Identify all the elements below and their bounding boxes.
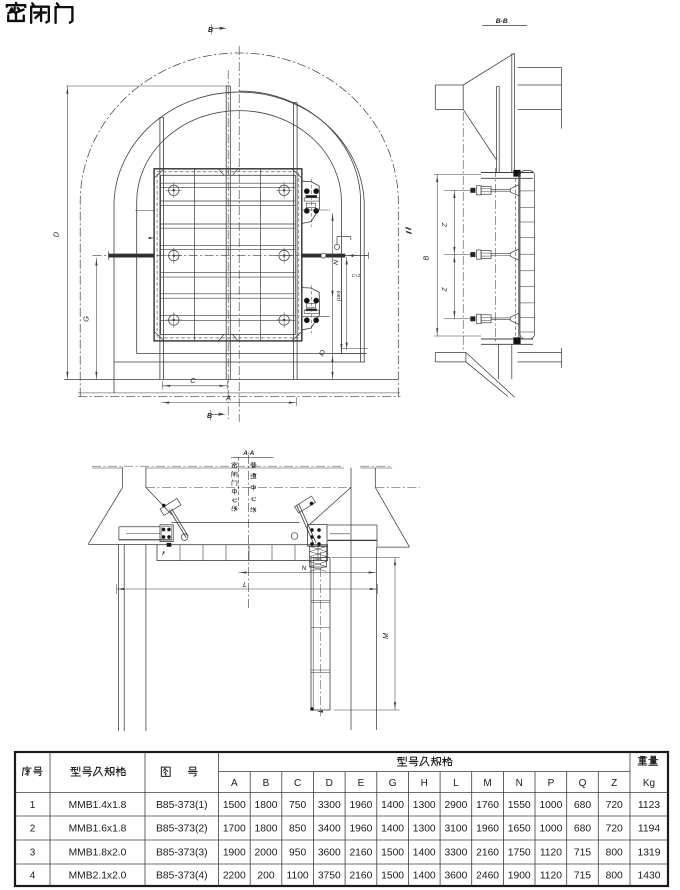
svg-text:950: 950: [289, 848, 306, 859]
svg-text:1300: 1300: [413, 800, 436, 811]
svg-text:1319: 1319: [638, 848, 661, 859]
svg-text:E: E: [358, 778, 365, 789]
svg-text:2900: 2900: [444, 800, 467, 811]
svg-text:3600: 3600: [318, 848, 341, 859]
svg-text:3: 3: [30, 848, 36, 859]
svg-text:P: P: [548, 778, 555, 789]
svg-text:Q: Q: [319, 350, 325, 357]
svg-text:M: M: [483, 778, 491, 789]
svg-text:200: 200: [257, 871, 274, 882]
svg-text:N: N: [302, 565, 307, 572]
svg-text:4: 4: [30, 871, 36, 882]
svg-text:2160: 2160: [349, 848, 372, 859]
svg-text:1750: 1750: [508, 848, 531, 859]
svg-text:B: B: [263, 778, 270, 789]
svg-text:2200: 2200: [223, 871, 246, 882]
svg-text:Z: Z: [442, 222, 449, 228]
svg-text:2460: 2460: [476, 871, 499, 882]
svg-text:MMB1.4x1.8: MMB1.4x1.8: [69, 800, 127, 811]
svg-text:1500: 1500: [381, 871, 404, 882]
svg-text:1000: 1000: [539, 824, 562, 835]
svg-text:1500: 1500: [381, 848, 404, 859]
svg-text:3750: 3750: [318, 871, 341, 882]
svg-text:3100: 3100: [444, 824, 467, 835]
svg-text:1430: 1430: [638, 871, 661, 882]
svg-text:720: 720: [606, 800, 623, 811]
svg-text:1120: 1120: [540, 848, 562, 859]
svg-text:1120: 1120: [540, 871, 562, 882]
svg-text:720: 720: [606, 824, 623, 835]
svg-text:715: 715: [574, 848, 591, 859]
svg-text:Q: Q: [579, 778, 587, 789]
svg-text:715: 715: [574, 871, 591, 882]
svg-text:1960: 1960: [349, 800, 372, 811]
svg-text:N: N: [516, 778, 523, 789]
svg-text:1800: 1800: [255, 824, 278, 835]
svg-text:2160: 2160: [476, 848, 499, 859]
svg-text:1760: 1760: [476, 800, 499, 811]
svg-text:3400: 3400: [318, 824, 341, 835]
svg-text:1960: 1960: [349, 824, 372, 835]
svg-text:C+Z: C+Z: [352, 273, 361, 278]
svg-text:1400: 1400: [381, 824, 404, 835]
svg-text:1400: 1400: [413, 848, 436, 859]
svg-text:G: G: [82, 316, 91, 322]
svg-text:1700: 1700: [223, 824, 246, 835]
svg-text:B85-373(2): B85-373(2): [156, 824, 208, 835]
svg-text:800: 800: [606, 871, 623, 882]
svg-text:1900: 1900: [508, 871, 531, 882]
svg-text:680: 680: [574, 800, 591, 811]
svg-text:A: A: [225, 394, 231, 403]
svg-text:800: 800: [606, 848, 623, 859]
svg-text:1800: 1800: [255, 800, 278, 811]
svg-text:1650: 1650: [508, 824, 531, 835]
svg-text:MMB2.1x2.0: MMB2.1x2.0: [69, 871, 127, 882]
svg-text:D: D: [326, 778, 333, 789]
svg-text:1500: 1500: [223, 800, 246, 811]
svg-text:3300: 3300: [318, 800, 341, 811]
svg-text:Z: Z: [442, 287, 449, 293]
svg-text:(180): (180): [336, 290, 341, 301]
svg-text:Z: Z: [611, 778, 617, 789]
svg-text:B-B: B-B: [496, 18, 508, 25]
svg-text:L: L: [243, 580, 247, 589]
svg-text:C: C: [190, 376, 196, 385]
svg-text:Kg: Kg: [643, 778, 655, 789]
svg-text:1123: 1123: [638, 800, 660, 811]
svg-text:2160: 2160: [349, 871, 372, 882]
svg-text:1400: 1400: [381, 800, 404, 811]
svg-text:B85-373(4): B85-373(4): [156, 871, 208, 882]
svg-text:M: M: [381, 633, 390, 639]
svg-text:1960: 1960: [476, 824, 499, 835]
svg-text:3600: 3600: [444, 871, 467, 882]
svg-text:3300: 3300: [444, 848, 467, 859]
svg-text:1: 1: [30, 800, 36, 811]
svg-text:1194: 1194: [638, 824, 660, 835]
svg-text:G: G: [389, 778, 397, 789]
svg-text:1300: 1300: [413, 824, 436, 835]
svg-text:L: L: [453, 778, 459, 789]
svg-text:B85-373(3): B85-373(3): [156, 848, 208, 859]
svg-text:1100: 1100: [287, 871, 309, 882]
svg-text:C: C: [294, 778, 301, 789]
svg-text:A: A: [231, 778, 238, 789]
svg-text:1900: 1900: [223, 848, 246, 859]
svg-text:H: H: [421, 778, 428, 789]
svg-text:D: D: [52, 231, 61, 237]
svg-text:750: 750: [289, 800, 306, 811]
svg-text:680: 680: [574, 824, 591, 835]
svg-text:1400: 1400: [413, 871, 436, 882]
svg-text:850: 850: [289, 824, 306, 835]
svg-text:B85-373(1): B85-373(1): [156, 800, 208, 811]
svg-text:1000: 1000: [539, 800, 562, 811]
svg-text:MMB1.6x1.8: MMB1.6x1.8: [69, 824, 127, 835]
svg-text:MMB1.8x2.0: MMB1.8x2.0: [69, 848, 127, 859]
svg-text:B: B: [424, 255, 431, 260]
svg-text:2000: 2000: [255, 848, 278, 859]
svg-text:2: 2: [30, 824, 36, 835]
svg-text:1550: 1550: [508, 800, 531, 811]
